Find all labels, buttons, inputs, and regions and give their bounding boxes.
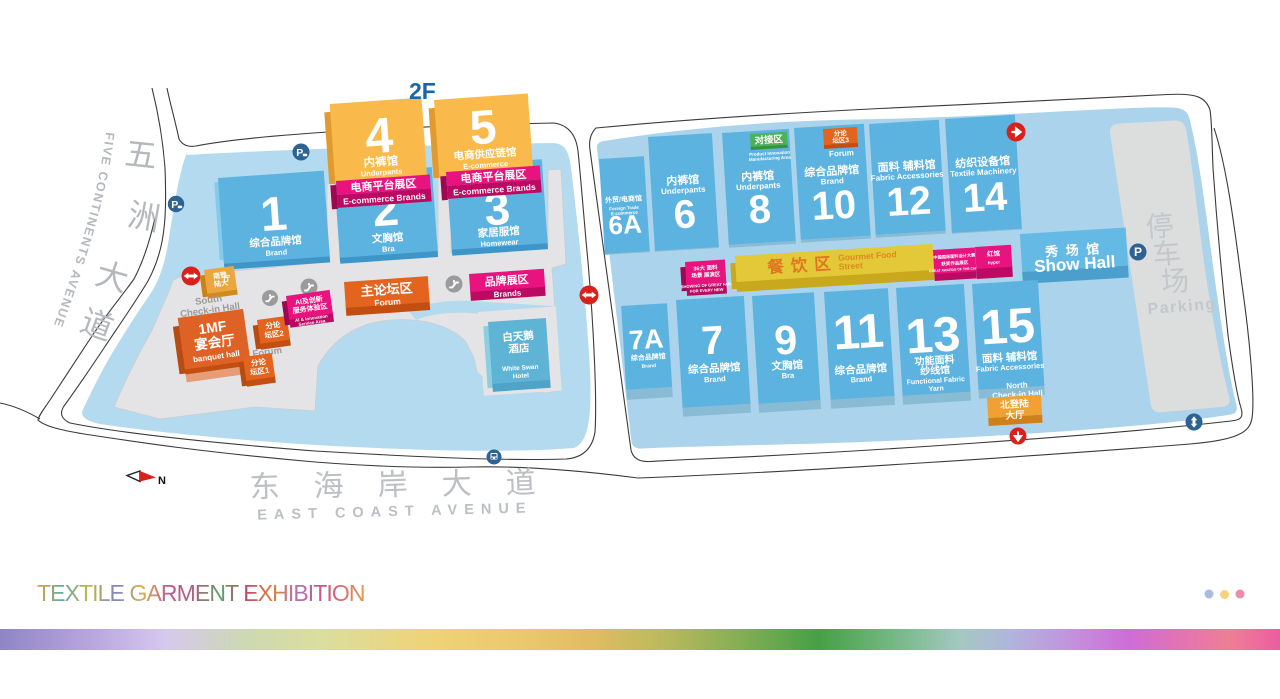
svg-text:大厅: 大厅 bbox=[1005, 409, 1025, 422]
svg-text:岸: 岸 bbox=[377, 468, 408, 502]
svg-text:6: 6 bbox=[672, 192, 697, 237]
svg-text:2F: 2F bbox=[409, 78, 436, 104]
svg-text:厅: 厅 bbox=[223, 274, 231, 283]
svg-text:TEXTILE GARMENT EXHIBITION: TEXTILE GARMENT EXHIBITION bbox=[37, 580, 365, 606]
svg-text:10: 10 bbox=[810, 182, 857, 229]
svg-text:8: 8 bbox=[747, 187, 772, 232]
svg-text:12: 12 bbox=[885, 178, 932, 225]
svg-text:6A: 6A bbox=[608, 209, 643, 241]
svg-text:Forum: Forum bbox=[829, 148, 854, 159]
svg-text:Bra: Bra bbox=[382, 244, 396, 254]
svg-text:东: 东 bbox=[249, 470, 280, 504]
svg-text:对接区: 对接区 bbox=[754, 133, 784, 147]
svg-text:五: 五 bbox=[123, 135, 159, 174]
svg-text:15: 15 bbox=[979, 298, 1037, 355]
svg-text:大: 大 bbox=[441, 467, 472, 501]
svg-text:1: 1 bbox=[259, 187, 289, 242]
svg-text:P: P bbox=[296, 147, 303, 159]
svg-text:场: 场 bbox=[1160, 265, 1190, 298]
svg-text:Brand: Brand bbox=[850, 374, 873, 384]
svg-text:Brand: Brand bbox=[641, 363, 656, 370]
svg-text:Hotel: Hotel bbox=[513, 372, 530, 380]
svg-text:洲: 洲 bbox=[125, 196, 163, 237]
svg-text:P: P bbox=[1134, 245, 1142, 259]
svg-text:Brand: Brand bbox=[265, 247, 288, 258]
svg-text:道: 道 bbox=[505, 466, 536, 500]
svg-text:11: 11 bbox=[832, 304, 886, 360]
svg-text:Street: Street bbox=[838, 260, 863, 271]
svg-text:Brand: Brand bbox=[704, 374, 727, 384]
svg-text:N: N bbox=[158, 475, 166, 487]
svg-text:酒店: 酒店 bbox=[508, 341, 530, 355]
svg-text:9: 9 bbox=[773, 316, 799, 363]
svg-text:14: 14 bbox=[961, 174, 1009, 221]
svg-text:Forum: Forum bbox=[374, 296, 402, 308]
svg-text:Yarn: Yarn bbox=[928, 385, 944, 393]
svg-text:P: P bbox=[171, 199, 178, 211]
svg-text:文胸馆: 文胸馆 bbox=[370, 230, 404, 245]
svg-text:7: 7 bbox=[700, 318, 725, 363]
svg-text:hyper: hyper bbox=[988, 259, 1001, 265]
svg-text:北登陆: 北登陆 bbox=[1000, 397, 1030, 411]
svg-text:海: 海 bbox=[313, 469, 344, 503]
svg-text:白天鹅: 白天鹅 bbox=[502, 329, 535, 344]
svg-text:7A: 7A bbox=[628, 324, 664, 356]
svg-text:Bra: Bra bbox=[781, 371, 795, 381]
